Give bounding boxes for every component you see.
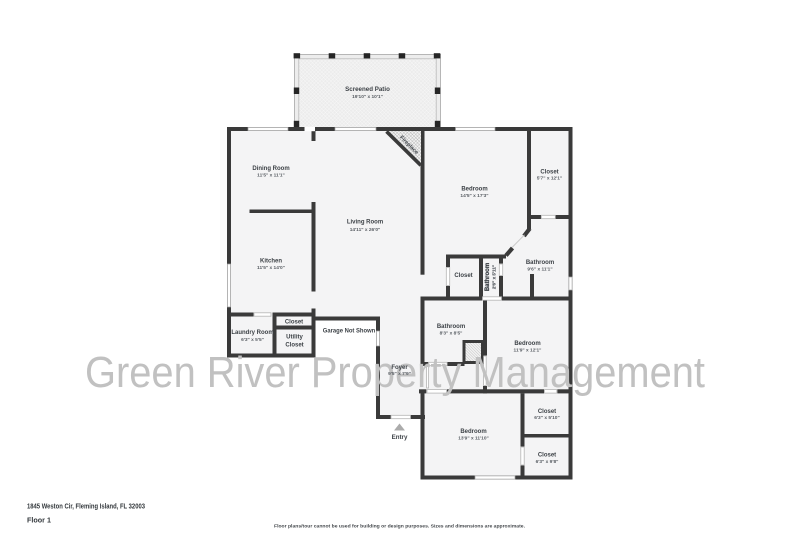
svg-text:6'3" x 9'8": 6'3" x 9'8" bbox=[536, 459, 559, 465]
svg-text:Floor 1: Floor 1 bbox=[27, 516, 51, 525]
svg-text:Living Room: Living Room bbox=[347, 220, 383, 226]
svg-text:Closet: Closet bbox=[285, 319, 303, 325]
svg-text:Screened Patio: Screened Patio bbox=[345, 86, 390, 93]
svg-text:Bedroom: Bedroom bbox=[461, 187, 487, 193]
svg-text:Closet: Closet bbox=[538, 453, 556, 459]
svg-text:Bathroom: Bathroom bbox=[526, 260, 554, 266]
svg-text:Closet: Closet bbox=[285, 342, 303, 348]
svg-text:Closet: Closet bbox=[454, 273, 472, 279]
svg-text:13'9" x 11'10": 13'9" x 11'10" bbox=[458, 436, 489, 442]
svg-text:11'9" x 12'1": 11'9" x 12'1" bbox=[514, 348, 542, 354]
svg-text:Dining Room: Dining Room bbox=[252, 166, 289, 172]
svg-text:Entry: Entry bbox=[392, 434, 408, 441]
svg-text:Bedroom: Bedroom bbox=[514, 341, 540, 347]
svg-text:14'11" x 26'0": 14'11" x 26'0" bbox=[350, 227, 381, 233]
svg-text:Floor plans/tour cannot be use: Floor plans/tour cannot be used for buil… bbox=[274, 524, 525, 530]
svg-text:Bathroom: Bathroom bbox=[437, 324, 465, 330]
svg-text:Utility: Utility bbox=[286, 335, 303, 341]
svg-text:Bedroom: Bedroom bbox=[460, 429, 486, 435]
svg-text:Closet: Closet bbox=[538, 409, 556, 415]
svg-text:Laundry Room: Laundry Room bbox=[231, 330, 273, 336]
svg-text:11'5" x 14'0": 11'5" x 14'0" bbox=[257, 265, 285, 271]
svg-text:6'3" x 5'5": 6'3" x 5'5" bbox=[241, 337, 264, 343]
svg-text:Kitchen: Kitchen bbox=[260, 258, 282, 264]
svg-text:19'10" x 10'1": 19'10" x 10'1" bbox=[352, 94, 383, 100]
svg-text:11'5" x 11'1": 11'5" x 11'1" bbox=[257, 173, 285, 179]
svg-text:Closet: Closet bbox=[540, 170, 558, 176]
svg-text:1845 Weston Cir, Fleming Islan: 1845 Weston Cir, Fleming Island, FL 3200… bbox=[27, 504, 145, 511]
svg-text:8'3" x 8'5": 8'3" x 8'5" bbox=[440, 331, 463, 337]
svg-text:Foyer: Foyer bbox=[391, 365, 408, 371]
svg-text:6'3" x 5'10": 6'3" x 5'10" bbox=[534, 415, 560, 421]
svg-text:9'5" x 7'9": 9'5" x 7'9" bbox=[388, 371, 411, 377]
svg-text:Garage Not Shown: Garage Not Shown bbox=[323, 328, 376, 335]
svg-text:2'6" x 5'11": 2'6" x 5'11" bbox=[492, 265, 497, 289]
svg-text:Bathroom: Bathroom bbox=[485, 263, 491, 291]
svg-text:14'5" x 17'3": 14'5" x 17'3" bbox=[460, 193, 488, 199]
svg-text:9'6" x 11'1": 9'6" x 11'1" bbox=[527, 266, 552, 272]
svg-text:5'7" x 12'1": 5'7" x 12'1" bbox=[537, 176, 563, 182]
